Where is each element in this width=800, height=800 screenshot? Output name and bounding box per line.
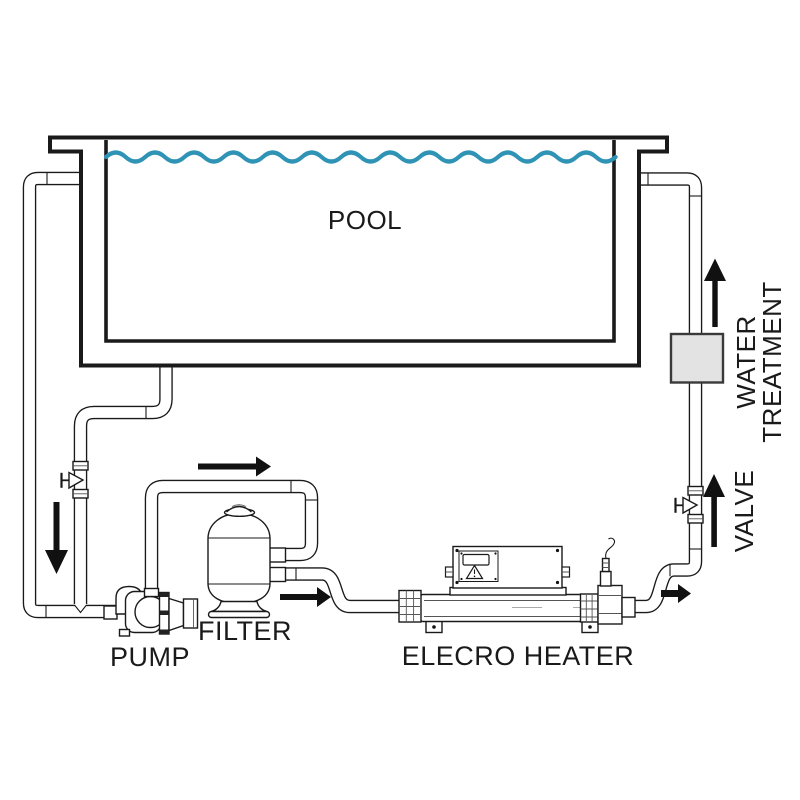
heater-control-box: [446, 547, 570, 596]
filter-vessel: [208, 514, 270, 604]
pool-heating-diagram: POOL: [0, 0, 800, 800]
sensor-cable: [606, 538, 615, 558]
heater-right-flange: [581, 594, 599, 622]
heater-left-union: [399, 591, 421, 623]
pump-motor-body: [184, 599, 198, 628]
pool-label: POOL: [328, 205, 402, 235]
water-treatment-label-line2: TREATMENT: [757, 281, 787, 442]
pool-inner-tank: [106, 140, 614, 341]
up-arrow-icon: [704, 259, 726, 328]
diagram-canvas: POOL: [0, 0, 800, 800]
pump-outlet-coupling: [145, 589, 159, 597]
filter-lid-dome: [227, 507, 252, 513]
pump-motor-cone: [169, 599, 184, 631]
pipe-filter-to-heater-bore: [282, 574, 405, 607]
pipe-heater-to-pool-bore: [632, 179, 696, 607]
filter-base-skirt: [211, 602, 267, 612]
elecro-heater: [399, 538, 635, 632]
heater-label: ELECRO HEATER: [402, 641, 635, 671]
heater-right-union: [598, 586, 622, 625]
up-arrow-icon: [703, 474, 725, 547]
filter-outlet-stub: [269, 568, 286, 582]
pool: POOL: [50, 138, 667, 366]
pump-inlet-stub: [104, 606, 117, 619]
filter-label: FILTER: [198, 616, 292, 646]
water-treatment-unit: [671, 334, 723, 383]
filter-inlet-stub: [269, 548, 286, 562]
pump-drain-plug: [120, 630, 130, 637]
right-arrow-icon: [280, 587, 331, 607]
right-arrow-icon: [198, 457, 271, 477]
pump-label: PUMP: [110, 642, 190, 672]
pump: [104, 587, 198, 637]
heater-sensor: [601, 538, 615, 586]
control-display: [463, 555, 489, 566]
valve-label: VALVE: [729, 470, 759, 552]
filter: [208, 505, 286, 618]
down-arrow-icon: [45, 502, 68, 574]
pipe-heater-to-pool-casing: [632, 179, 696, 607]
heater-end-cap: [622, 598, 635, 618]
